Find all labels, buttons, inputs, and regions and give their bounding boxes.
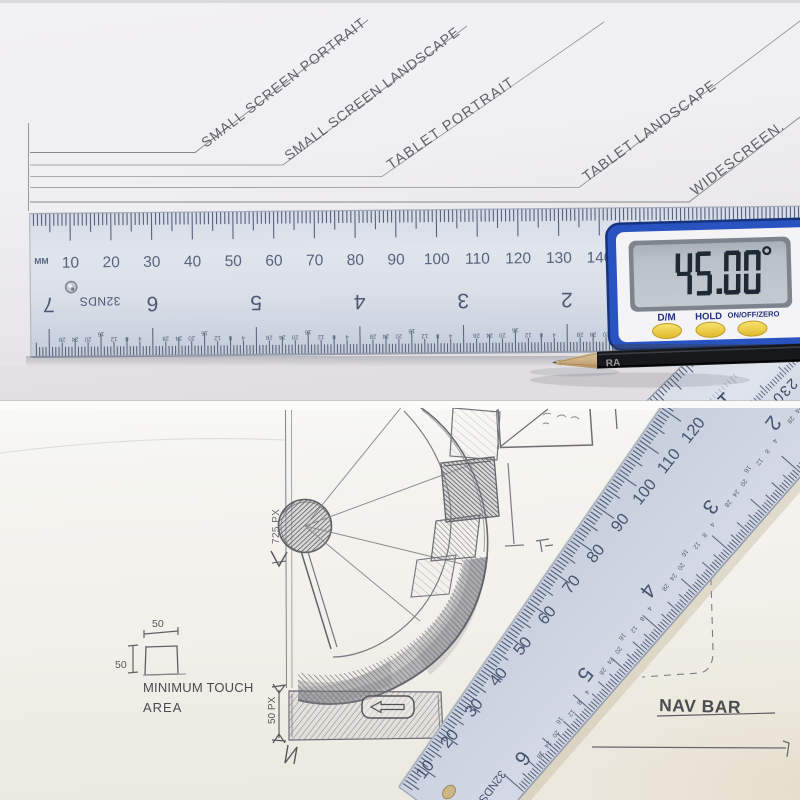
svg-text:20: 20 xyxy=(395,332,402,338)
svg-text:12: 12 xyxy=(110,335,117,341)
svg-text:70: 70 xyxy=(306,252,324,269)
svg-text:12: 12 xyxy=(213,334,220,340)
svg-text:12: 12 xyxy=(421,332,428,338)
svg-text:AREA: AREA xyxy=(143,700,182,715)
svg-text:HOLD: HOLD xyxy=(695,311,722,323)
svg-text:28: 28 xyxy=(369,333,376,339)
svg-text:ON/OFF/ZERO: ON/OFF/ZERO xyxy=(727,309,779,319)
svg-text:10: 10 xyxy=(62,255,80,272)
svg-text:4: 4 xyxy=(353,290,365,313)
svg-text:28: 28 xyxy=(265,334,272,340)
svg-text:110: 110 xyxy=(465,251,490,268)
svg-text:28: 28 xyxy=(472,332,479,338)
svg-text:3: 3 xyxy=(457,289,469,312)
svg-text:D/M: D/M xyxy=(657,312,676,324)
svg-text:6: 6 xyxy=(147,292,159,315)
svg-text:RA: RA xyxy=(605,358,620,370)
svg-text:120: 120 xyxy=(505,250,531,267)
svg-text:MINIMUM TOUCH: MINIMUM TOUCH xyxy=(143,680,253,695)
svg-text:2: 2 xyxy=(561,288,573,311)
svg-text:60: 60 xyxy=(265,253,283,270)
svg-text:28: 28 xyxy=(576,331,583,337)
svg-text:32NDS: 32NDS xyxy=(79,294,120,308)
svg-text:28: 28 xyxy=(58,336,65,342)
svg-text:5: 5 xyxy=(250,291,262,314)
svg-text:50: 50 xyxy=(115,659,127,671)
svg-text:130: 130 xyxy=(546,250,572,267)
svg-text:90: 90 xyxy=(387,251,405,268)
svg-text:12: 12 xyxy=(317,333,324,339)
svg-text:20: 20 xyxy=(498,331,505,337)
svg-text:50 PX: 50 PX xyxy=(267,696,278,724)
svg-text:40: 40 xyxy=(184,253,202,270)
svg-text:7: 7 xyxy=(43,293,55,316)
svg-text:20: 20 xyxy=(102,254,120,271)
svg-text:20: 20 xyxy=(188,334,195,340)
svg-text:30: 30 xyxy=(143,254,161,271)
svg-text:50: 50 xyxy=(152,618,164,630)
svg-text:28: 28 xyxy=(162,335,169,341)
svg-text:20: 20 xyxy=(291,333,298,339)
svg-text:MM: MM xyxy=(34,256,48,266)
svg-text:20: 20 xyxy=(84,335,91,341)
svg-text:12: 12 xyxy=(524,331,531,337)
svg-text:100: 100 xyxy=(424,251,450,268)
svg-text:80: 80 xyxy=(347,252,365,269)
svg-text:50: 50 xyxy=(225,253,243,270)
